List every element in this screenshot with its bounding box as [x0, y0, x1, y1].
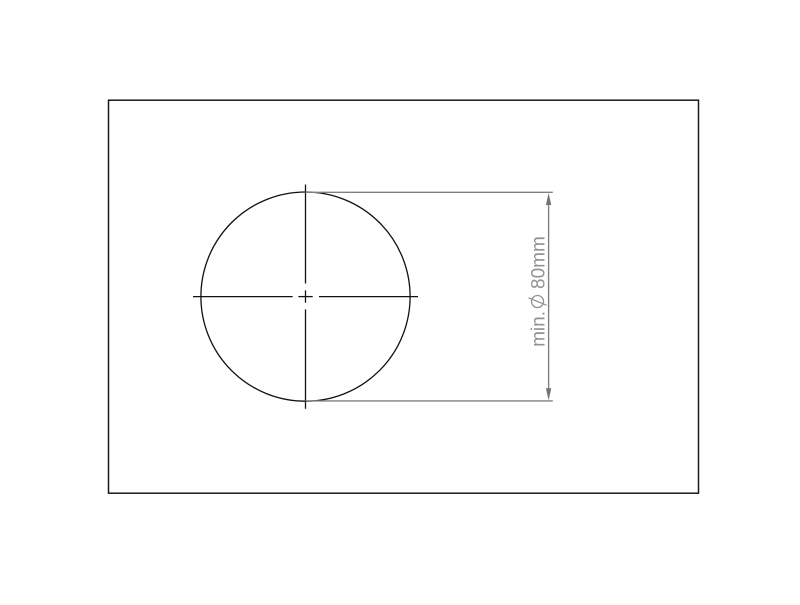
svg-text:80mm: 80mm — [529, 236, 550, 289]
svg-text:min.: min. — [529, 311, 550, 347]
